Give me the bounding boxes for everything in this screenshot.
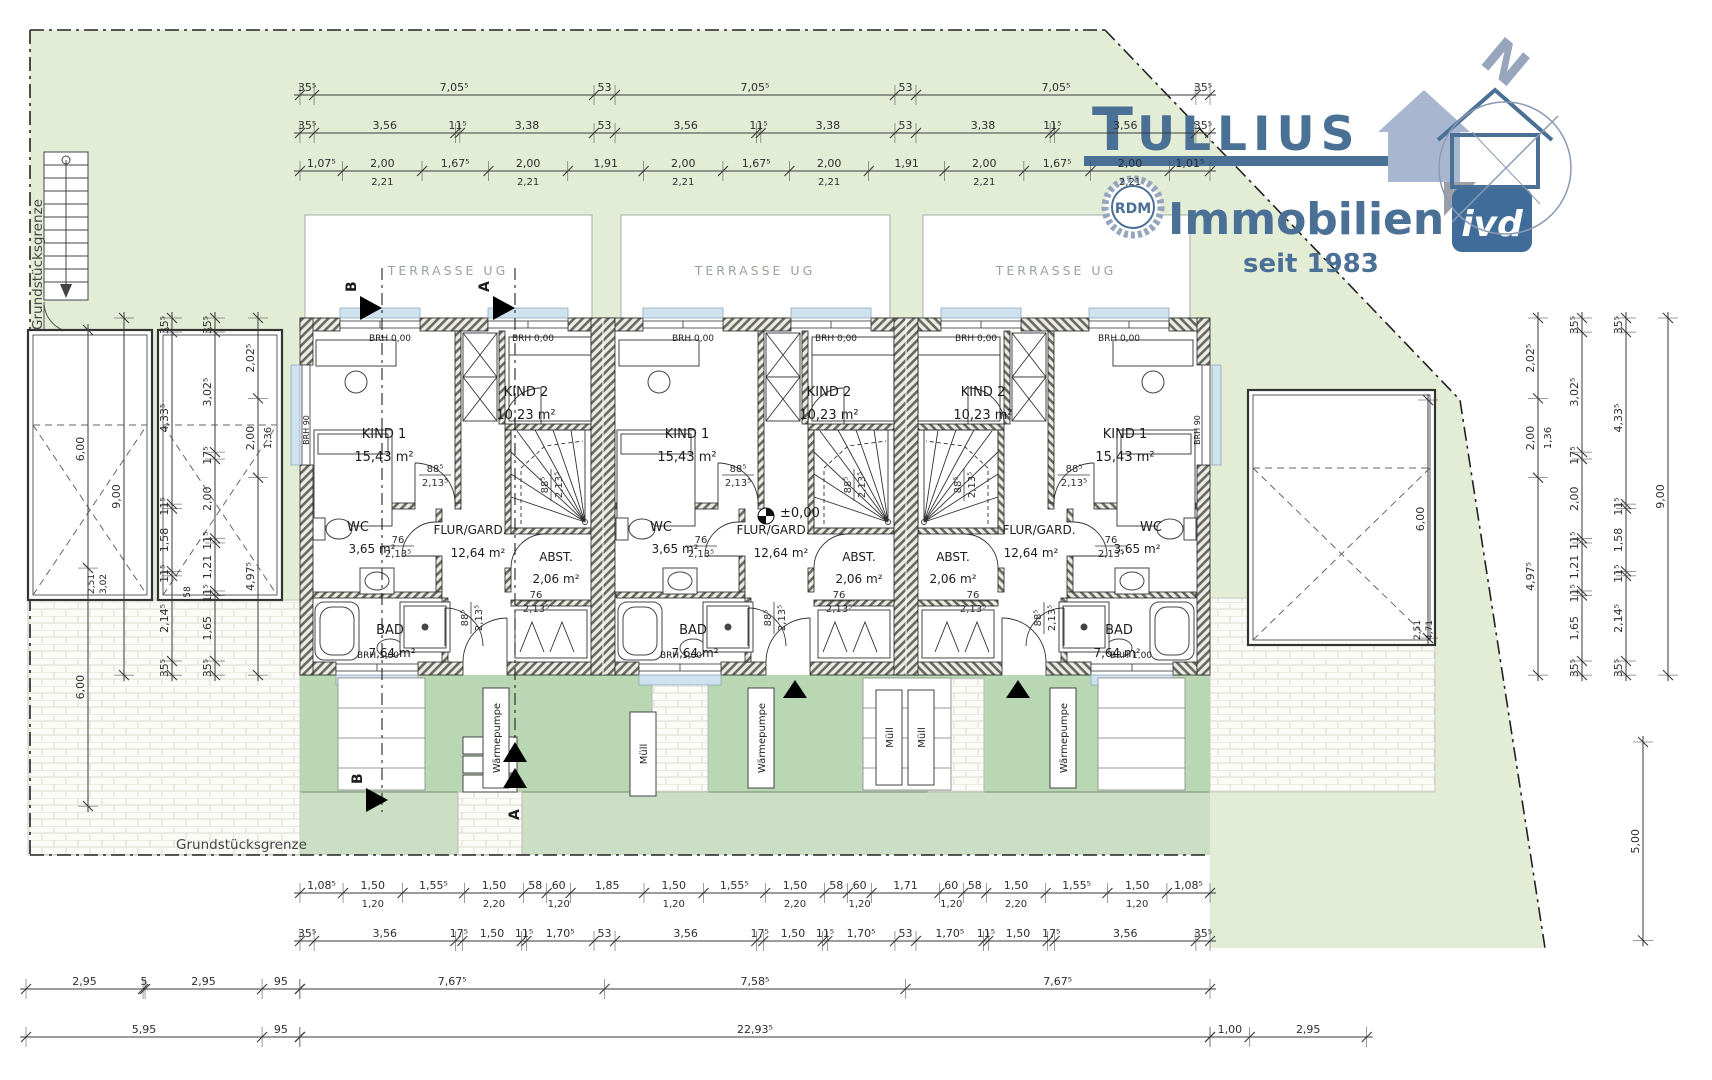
- room-label: BRH 0,00: [1098, 334, 1140, 344]
- wardrobe: [766, 333, 800, 421]
- dim-label: 1,70⁵: [546, 927, 575, 940]
- dim-label: 3,02⁵: [201, 378, 214, 407]
- equipment-box-label: Müll: [639, 744, 650, 765]
- dim-label: 22,93⁵: [737, 1023, 773, 1036]
- dim-label: 53: [598, 81, 612, 94]
- room-label: KIND 2: [961, 385, 1006, 400]
- room-label: BRH 90: [302, 415, 311, 445]
- dim-label: 7,58⁵: [741, 975, 770, 988]
- dim-label: 35⁵: [158, 659, 171, 677]
- dim-label: 53: [898, 81, 912, 94]
- dim-label: 5,00: [1629, 829, 1642, 854]
- dim-sublabel: 2,21: [517, 177, 539, 188]
- dim-label: 1,71: [893, 879, 918, 892]
- room-label: 2,51: [1413, 620, 1423, 640]
- door-dim-denominator: 2,13⁵: [960, 604, 986, 615]
- dim-sublabel: 1,36: [1543, 427, 1554, 449]
- dim-label: 2,00: [1524, 426, 1537, 451]
- dim-label: 35⁵: [1194, 119, 1212, 132]
- dim-label: 35⁵: [1568, 659, 1581, 677]
- dim-label: 2,00: [370, 157, 395, 170]
- dim-label: 1,50: [781, 927, 806, 940]
- door-dim-numerator: 88⁵: [460, 610, 471, 627]
- dim-label: 1,55⁵: [419, 879, 448, 892]
- dim-label: 1,08⁵: [1174, 879, 1203, 892]
- equipment-box: Wärmepumpe: [1050, 688, 1076, 788]
- dim-label: 11⁵: [977, 927, 995, 940]
- dim-label: 1,50: [482, 879, 507, 892]
- dim-sublabel: 2,21: [1119, 177, 1141, 188]
- terrace-1-label: TERRASSE UG: [387, 263, 509, 278]
- garage-right: [1248, 390, 1435, 645]
- terraces: TERRASSE UG TERRASSE UG TERRASSE UG: [305, 215, 1190, 318]
- room-label: KIND 1: [1103, 427, 1148, 442]
- dim-label: 1,65: [1568, 616, 1581, 641]
- room-label: 3,02: [99, 574, 109, 594]
- dim-label: 1,50: [1004, 879, 1029, 892]
- door-dim-numerator: 88⁵: [730, 464, 747, 475]
- door-dim-numerator: 88⁵: [843, 477, 854, 494]
- dim-label: 3,56: [673, 119, 698, 132]
- dim-sublabel: 2,20: [483, 899, 505, 910]
- wardrobe: [463, 333, 497, 421]
- dim-label: 2,02⁵: [1524, 344, 1537, 373]
- dim-label: 35⁵: [1194, 81, 1212, 94]
- dim-label: 95: [274, 975, 288, 988]
- room-label: 2,06 m²: [532, 572, 579, 586]
- door-dim-denominator: 2,13⁵: [857, 472, 868, 498]
- section-letter: B: [344, 281, 360, 292]
- dim-sublabel: 1,20: [1126, 899, 1148, 910]
- equipment-box-label: Wärmepumpe: [1059, 703, 1070, 773]
- dim-label: 9,00: [110, 484, 123, 509]
- dim-label: 7,67⁵: [1043, 975, 1072, 988]
- logo-since: seit 1983: [1243, 249, 1379, 279]
- dim-label: 35⁵: [201, 316, 214, 334]
- dim-label: 1,65: [201, 616, 214, 641]
- dim-label: 2,95: [1296, 1023, 1321, 1036]
- dim-label: 1,50: [783, 879, 808, 892]
- door-dim-numerator: 88⁵: [763, 610, 774, 627]
- dim-label: 3,56: [372, 927, 397, 940]
- dim-label: 4,97⁵: [1524, 562, 1537, 591]
- equipment-box-label: Müll: [885, 727, 896, 748]
- logo-line2: Immobilien: [1168, 194, 1444, 245]
- dim-label: 1,70⁵: [847, 927, 876, 940]
- dim-label: 1,67⁵: [441, 157, 470, 170]
- dim-label: 2,00: [244, 426, 257, 451]
- dim-label: 1,91: [593, 157, 618, 170]
- door-dim-denominator: 2,13⁵: [688, 549, 714, 560]
- room-label: 15,43 m²: [354, 450, 413, 465]
- dimension-chain: 2,02⁵2,001,364,97⁵: [1524, 312, 1554, 681]
- room-label: FLUR/GARD.: [1002, 523, 1075, 537]
- room-label: 12,64 m²: [754, 546, 809, 560]
- dim-sublabel: 1,20: [362, 899, 384, 910]
- door-dim-numerator: 76: [1105, 535, 1118, 546]
- door-dim-denominator: 2,13⁵: [1047, 605, 1058, 631]
- room-label: KIND 2: [504, 385, 549, 400]
- dim-label: 4,33⁵: [1612, 404, 1625, 433]
- paving-path-1: [652, 678, 708, 792]
- dimension-chain: 2,9552,9595: [20, 975, 306, 999]
- room-label: 2,06 m²: [929, 572, 976, 586]
- dim-label: 35⁵: [1612, 659, 1625, 677]
- dim-label: 7,05⁵: [440, 81, 469, 94]
- dimension-chain: 5,00: [1629, 736, 1653, 946]
- dim-label: 35⁵: [298, 81, 316, 94]
- dim-sublabel: 2,21: [818, 177, 840, 188]
- room-label: BRH 1,00: [660, 651, 702, 661]
- garden-rear-lower: [300, 792, 1210, 855]
- dim-sublabel: 2,20: [1005, 899, 1027, 910]
- equipment-box-label: Müll: [917, 727, 928, 748]
- door-dim-numerator: 88⁵: [953, 477, 964, 494]
- room-label: 2,06 m²: [835, 572, 882, 586]
- room-label: KIND 1: [665, 427, 710, 442]
- dim-label: 1,67⁵: [1043, 157, 1072, 170]
- dim-label: 6,00: [74, 437, 87, 462]
- dim-label: 3,38: [816, 119, 841, 132]
- room-label: WC: [650, 520, 672, 535]
- door-dim-numerator: 88⁵: [540, 477, 551, 494]
- dimension-chain: 35⁵3,5617⁵1,5011⁵1,70⁵533,5617⁵1,5011⁵1,…: [294, 927, 1216, 951]
- dim-label: 1,58: [158, 528, 171, 553]
- floorplan-svg: TERRASSE UG TERRASSE UG TERRASSE UG: [0, 0, 1712, 1080]
- garage-left-2: [158, 330, 282, 600]
- dim-label: 6,00: [1414, 507, 1427, 532]
- equipment-box: Wärmepumpe: [483, 688, 509, 788]
- room-label: 15,43 m²: [657, 450, 716, 465]
- dim-label: 1,01⁵: [1175, 157, 1204, 170]
- dimension-chain: 1,002,95: [1204, 1023, 1373, 1047]
- equipment-box: Wärmepumpe: [748, 688, 774, 788]
- dimension-chain: 35⁵3,02⁵17⁵2,0011⁵1,2111⁵1,6535⁵: [1568, 312, 1592, 681]
- dim-sublabel: 1,20: [849, 899, 871, 910]
- dim-label: 3,56: [1113, 927, 1138, 940]
- room-label: 4,71: [1425, 620, 1435, 640]
- dim-label: 2,00: [817, 157, 842, 170]
- dim-label: 58: [829, 879, 843, 892]
- door-dim-denominator: 2,13⁵: [826, 604, 852, 615]
- room-label: KIND 2: [807, 385, 852, 400]
- dim-sublabel: 1,20: [548, 899, 570, 910]
- dim-label: 35⁵: [1568, 316, 1581, 334]
- dim-label: 1,85: [595, 879, 620, 892]
- dim-label: 58: [968, 879, 982, 892]
- dim-label: 2,14⁵: [158, 604, 171, 633]
- boundary-label-left: Grundstücksgrenze: [30, 199, 46, 330]
- room-label: BRH 0,00: [672, 334, 714, 344]
- room-label: BAD: [376, 623, 404, 638]
- dim-sublabel: 1,20: [663, 899, 685, 910]
- dim-label: 2,95: [72, 975, 97, 988]
- dim-label: 1,70⁵: [935, 927, 964, 940]
- dim-label: 7,05⁵: [741, 81, 770, 94]
- room-label: BRH 90: [1193, 415, 1202, 445]
- dim-label: 60: [552, 879, 566, 892]
- section-letter: A: [477, 281, 493, 292]
- door-dim-denominator: 2,13⁵: [523, 604, 549, 615]
- dim-label: 53: [598, 119, 612, 132]
- wardrobe: [1012, 333, 1046, 421]
- room-label: KIND 1: [362, 427, 407, 442]
- section-letter: B: [350, 773, 366, 784]
- door-dim-denominator: 2,13⁵: [967, 472, 978, 498]
- floorplan-page: TERRASSE UG TERRASSE UG TERRASSE UG: [0, 0, 1712, 1080]
- dim-label: 5: [141, 975, 148, 988]
- dim-label: 1,50: [662, 879, 687, 892]
- dim-sublabel: 1,20: [940, 899, 962, 910]
- room-label: 2,51: [87, 574, 97, 594]
- dim-label: 6,00: [74, 675, 87, 700]
- room-label: ABST.: [842, 550, 876, 564]
- dim-sublabel: 2,21: [371, 177, 393, 188]
- dim-label: 1,08⁵: [307, 879, 336, 892]
- dim-label: 2,95: [191, 975, 216, 988]
- door-dim-numerator: 76: [967, 590, 980, 601]
- dim-label: 2,02⁵: [244, 344, 257, 373]
- svg-text:N: N: [1470, 27, 1539, 98]
- dim-label: 1,50: [1125, 879, 1150, 892]
- room-label: BRH 1,00: [1110, 651, 1152, 661]
- dim-sublabel: 2,21: [672, 177, 694, 188]
- dim-label: 2,00: [516, 157, 541, 170]
- dimension-chain: 9,00: [1654, 312, 1678, 681]
- door-dim-numerator: 76: [833, 590, 846, 601]
- dim-label: 1,55⁵: [720, 879, 749, 892]
- garage-left-1: [28, 330, 152, 600]
- room-label: 10,23 m²: [496, 408, 555, 423]
- dim-label: 60: [944, 879, 958, 892]
- room-label: 15,43 m²: [1095, 450, 1154, 465]
- dim-label: 1,58: [1612, 528, 1625, 553]
- dim-label: 3,56: [1113, 119, 1138, 132]
- section-letter: A: [507, 809, 523, 820]
- dim-label: 7,67⁵: [438, 975, 467, 988]
- equipment-box: Müll: [908, 690, 934, 785]
- boundary-label-bottom: Grundstücksgrenze: [176, 837, 307, 853]
- dim-label: 2,14⁵: [1612, 604, 1625, 633]
- door-dim-denominator: 2,13⁵: [422, 478, 448, 489]
- dim-label: 1,50: [361, 879, 386, 892]
- dim-label: 9,00: [1654, 484, 1667, 509]
- room-label: 58: [183, 586, 193, 598]
- dim-label: 53: [598, 927, 612, 940]
- dim-label: 1,91: [894, 157, 919, 170]
- dim-label: 53: [898, 119, 912, 132]
- door-dim-numerator: 76: [392, 535, 405, 546]
- dim-label: 1,21: [201, 555, 214, 580]
- dim-label: 1,55⁵: [1062, 879, 1091, 892]
- dim-label: 3,38: [971, 119, 996, 132]
- equipment-box: Müll: [876, 690, 902, 785]
- dim-label: 58: [528, 879, 542, 892]
- paving-left: [28, 600, 300, 855]
- dim-label: 5,95: [132, 1023, 157, 1036]
- equipment-box-label: Wärmepumpe: [757, 703, 768, 773]
- room-label: BAD: [679, 623, 707, 638]
- dimension-chain: 22,93⁵: [294, 1023, 1216, 1047]
- room-label: 12,64 m²: [1004, 546, 1059, 560]
- door-dim-denominator: 2,13⁵: [725, 478, 751, 489]
- dimension-chain: 7,67⁵7,58⁵7,67⁵: [294, 975, 1216, 999]
- dim-label: 3,38: [515, 119, 540, 132]
- dim-label: 1,67⁵: [742, 157, 771, 170]
- dim-sublabel: 1,36: [263, 427, 274, 449]
- door-dim-denominator: 2,13⁵: [777, 605, 788, 631]
- dim-label: 2,00: [972, 157, 997, 170]
- paving-path-door: [458, 792, 522, 855]
- dim-label: 3,56: [673, 927, 698, 940]
- room-label: BAD: [1105, 623, 1133, 638]
- room-label: BRH 0,00: [815, 334, 857, 344]
- equipment-box-label: Wärmepumpe: [492, 703, 503, 773]
- dim-label: 3,02⁵: [1568, 378, 1581, 407]
- dim-label: 1,07⁵: [307, 157, 336, 170]
- dim-label: 35⁵: [1612, 316, 1625, 334]
- room-label: 12,64 m²: [451, 546, 506, 560]
- door-dim-numerator: 88⁵: [427, 464, 444, 475]
- room-label: BRH 0,00: [512, 334, 554, 344]
- dim-label: 1,50: [1006, 927, 1031, 940]
- dim-label: 4,97⁵: [244, 562, 257, 591]
- room-label: 10,23 m²: [799, 408, 858, 423]
- level-label: ±0,00: [780, 506, 820, 521]
- dim-label: 95: [274, 1023, 288, 1036]
- room-label: ABST.: [539, 550, 573, 564]
- dim-label: 11⁵: [1043, 119, 1061, 132]
- dim-label: 35⁵: [1194, 927, 1212, 940]
- dim-label: 7,05⁵: [1041, 81, 1070, 94]
- dim-label: 2,00: [1118, 157, 1143, 170]
- dim-label: 11⁵: [816, 927, 834, 940]
- dim-label: 4,33⁵: [158, 404, 171, 433]
- dim-label: 11⁵: [749, 119, 767, 132]
- dim-label: 11⁵: [515, 927, 533, 940]
- dim-label: 35⁵: [298, 927, 316, 940]
- dim-label: 2,00: [1568, 486, 1581, 511]
- door-dim-numerator: 88⁵: [1066, 464, 1083, 475]
- dim-label: 11⁵: [448, 119, 466, 132]
- door-dim-numerator: 88⁵: [1033, 610, 1044, 627]
- dim-sublabel: 2,20: [784, 899, 806, 910]
- equipment-box: Müll: [630, 712, 656, 796]
- room-label: WC: [347, 520, 369, 535]
- dimension-chain: 1,08⁵1,501,201,55⁵1,502,2058601,201,851,…: [294, 879, 1216, 910]
- door-dim-denominator: 2,13⁵: [1098, 549, 1124, 560]
- room-label: WC: [1140, 520, 1162, 535]
- dim-label: 3,56: [372, 119, 397, 132]
- dim-label: 60: [853, 879, 867, 892]
- dim-label: 35⁵: [298, 119, 316, 132]
- door-dim-numerator: 76: [530, 590, 543, 601]
- dim-label: 53: [898, 927, 912, 940]
- svg-text:RDM: RDM: [1115, 201, 1151, 217]
- door-dim-numerator: 76: [695, 535, 708, 546]
- door-dim-denominator: 2,13⁵: [1061, 478, 1087, 489]
- dim-label: 35⁵: [158, 316, 171, 334]
- dimension-chain: 35⁵4,33⁵11⁵1,5811⁵2,14⁵35⁵: [1612, 312, 1636, 681]
- dim-sublabel: 2,21: [973, 177, 995, 188]
- terrace-3-label: TERRASSE UG: [995, 263, 1117, 278]
- compass-north-icon: N: [1470, 27, 1539, 98]
- room-label: BRH 1,00: [357, 651, 399, 661]
- room-label: ABST.: [936, 550, 970, 564]
- room-label: FLUR/GARD.: [433, 523, 506, 537]
- dim-label: 35⁵: [201, 659, 214, 677]
- dim-label: 1,50: [480, 927, 505, 940]
- door-dim-denominator: 2,13⁵: [385, 549, 411, 560]
- room-label: BRH 0,00: [955, 334, 997, 344]
- door-dim-denominator: 2,13⁵: [554, 472, 565, 498]
- door-dim-denominator: 2,13⁵: [474, 605, 485, 631]
- room-label: FLUR/GARD.: [736, 523, 809, 537]
- dim-label: 2,00: [671, 157, 696, 170]
- dimension-chain: 5,9595: [20, 1023, 306, 1047]
- room-label: BRH 0,00: [369, 334, 411, 344]
- terrace-2-label: TERRASSE UG: [694, 263, 816, 278]
- dim-label: 2,00: [201, 486, 214, 511]
- dim-label: 1,00: [1218, 1023, 1243, 1036]
- dim-label: 1,21: [1568, 555, 1581, 580]
- room-label: 10,23 m²: [953, 408, 1012, 423]
